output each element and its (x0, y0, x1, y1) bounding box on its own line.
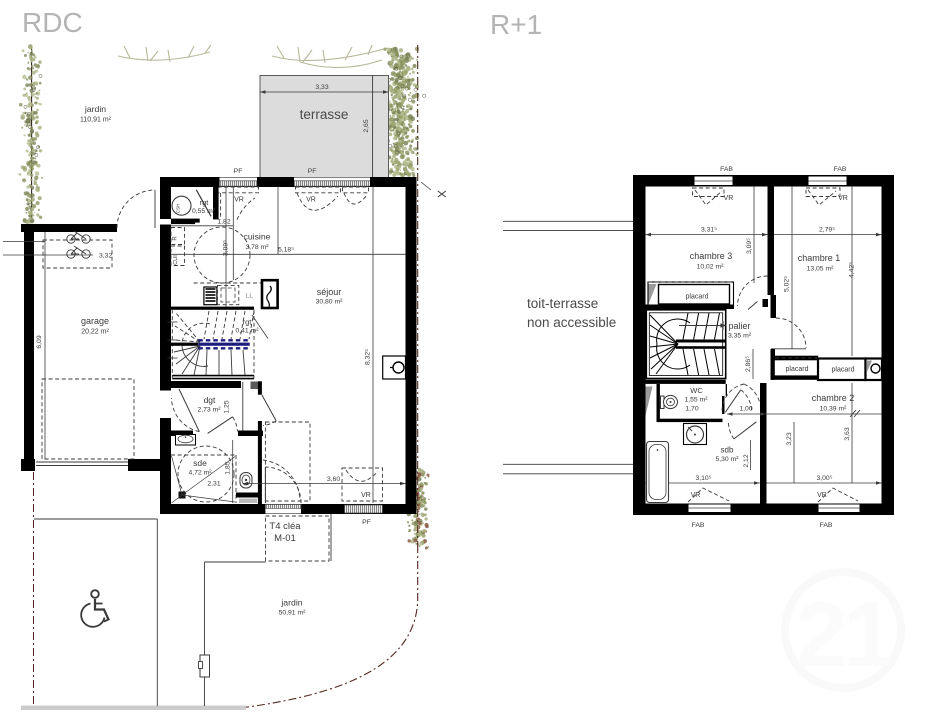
svg-text:M-01: M-01 (274, 533, 296, 544)
svg-text:chambre 2: chambre 2 (812, 393, 855, 403)
svg-text:rgt: rgt (200, 198, 210, 207)
svg-text:FAB: FAB (720, 166, 733, 173)
svg-text:WC: WC (690, 386, 703, 395)
svg-text:2,65: 2,65 (363, 119, 370, 132)
svg-text:dgt: dgt (204, 395, 216, 405)
svg-text:terrasse: terrasse (300, 107, 349, 122)
svg-text:10,39 m²: 10,39 m² (820, 406, 848, 413)
svg-text:sdb: sdb (721, 446, 734, 455)
svg-text:placard: placard (686, 294, 709, 301)
svg-text:1,85: 1,85 (225, 461, 232, 474)
svg-text:chambre 3: chambre 3 (690, 251, 733, 261)
svg-text:3,35 m²: 3,35 m² (728, 333, 752, 340)
svg-text:R+1: R+1 (490, 9, 542, 40)
svg-text:VR: VR (838, 195, 848, 202)
svg-text:3,32: 3,32 (99, 253, 112, 260)
svg-text:13,05 m²: 13,05 m² (807, 266, 835, 273)
svg-text:PF: PF (362, 519, 371, 526)
svg-text:placard: placard (786, 366, 809, 373)
svg-text:LL: LL (246, 293, 254, 300)
svg-text:T4 cléa: T4 cléa (269, 521, 301, 532)
svg-text:3,60: 3,60 (327, 476, 340, 483)
svg-text:4,42⁵: 4,42⁵ (849, 262, 856, 278)
svg-text:FAB: FAB (692, 522, 705, 529)
svg-text:VR: VR (306, 197, 316, 204)
svg-text:garage: garage (81, 316, 109, 326)
svg-text:6,09: 6,09 (36, 335, 43, 348)
svg-text:1,00: 1,00 (739, 406, 752, 413)
svg-text:3,23: 3,23 (786, 432, 793, 445)
svg-text:PF: PF (308, 168, 317, 175)
svg-text:non accessible: non accessible (527, 315, 616, 330)
svg-text:5,30 m²: 5,30 m² (715, 456, 739, 463)
svg-text:jardin: jardin (280, 598, 302, 608)
svg-text:1,70: 1,70 (685, 406, 698, 413)
svg-text:2,73 m²: 2,73 m² (197, 407, 221, 414)
svg-text:3,33: 3,33 (315, 84, 328, 91)
svg-text:20,22 m²: 20,22 m² (81, 329, 109, 336)
svg-text:VR: VR (724, 195, 734, 202)
svg-text:3,31⁵: 3,31⁵ (701, 227, 717, 234)
svg-text:3,10⁵: 3,10⁵ (695, 475, 711, 482)
svg-text:5,18⁵: 5,18⁵ (278, 247, 294, 254)
svg-text:1,82: 1,82 (217, 219, 230, 226)
svg-text:21: 21 (796, 584, 892, 686)
svg-text:chambre 1: chambre 1 (798, 253, 841, 263)
svg-text:2,12: 2,12 (743, 454, 750, 467)
svg-text:110,91 m²: 110,91 m² (80, 117, 112, 124)
svg-text:8,32⁵: 8,32⁵ (365, 349, 372, 365)
svg-text:palier: palier (729, 321, 751, 331)
svg-text:rgt: rgt (243, 318, 253, 327)
svg-text:5,02⁵: 5,02⁵ (784, 276, 791, 292)
svg-text:10,02 m²: 10,02 m² (697, 264, 725, 271)
svg-text:0,41 m²: 0,41 m² (235, 328, 259, 335)
svg-text:3,09⁵: 3,09⁵ (223, 240, 230, 256)
svg-text:PF: PF (234, 168, 243, 175)
svg-text:placard: placard (832, 367, 855, 374)
svg-text:séjour: séjour (317, 287, 342, 297)
svg-text:R: R (173, 236, 179, 241)
svg-text:3,00⁵: 3,00⁵ (816, 475, 832, 482)
svg-text:FAB: FAB (834, 166, 847, 173)
svg-text:0,55 m²: 0,55 m² (192, 208, 216, 215)
svg-text:FAB: FAB (820, 522, 833, 529)
svg-text:1,55 m²: 1,55 m² (684, 397, 708, 404)
svg-text:RDC: RDC (22, 7, 83, 38)
svg-text:jardin: jardin (84, 104, 106, 114)
svg-text:3,63: 3,63 (844, 427, 851, 440)
svg-text:2,86⁵: 2,86⁵ (745, 356, 752, 372)
svg-text:sde: sde (193, 458, 207, 468)
svg-text:3,09⁵: 3,09⁵ (746, 238, 753, 254)
svg-text:CSH: CSH (176, 204, 181, 214)
svg-text:2,31: 2,31 (207, 481, 220, 488)
svg-text:CUI: CUI (173, 255, 179, 265)
svg-text:VR: VR (361, 492, 371, 499)
svg-text:2,79⁵: 2,79⁵ (819, 227, 835, 234)
svg-text:1,25: 1,25 (224, 400, 231, 413)
svg-text:50,91 m²: 50,91 m² (279, 610, 307, 617)
svg-text:VR: VR (234, 197, 244, 204)
svg-text:cuisine: cuisine (243, 232, 270, 242)
svg-text:toit-terrasse: toit-terrasse (527, 296, 598, 311)
svg-text:30,80 m²: 30,80 m² (316, 299, 344, 306)
